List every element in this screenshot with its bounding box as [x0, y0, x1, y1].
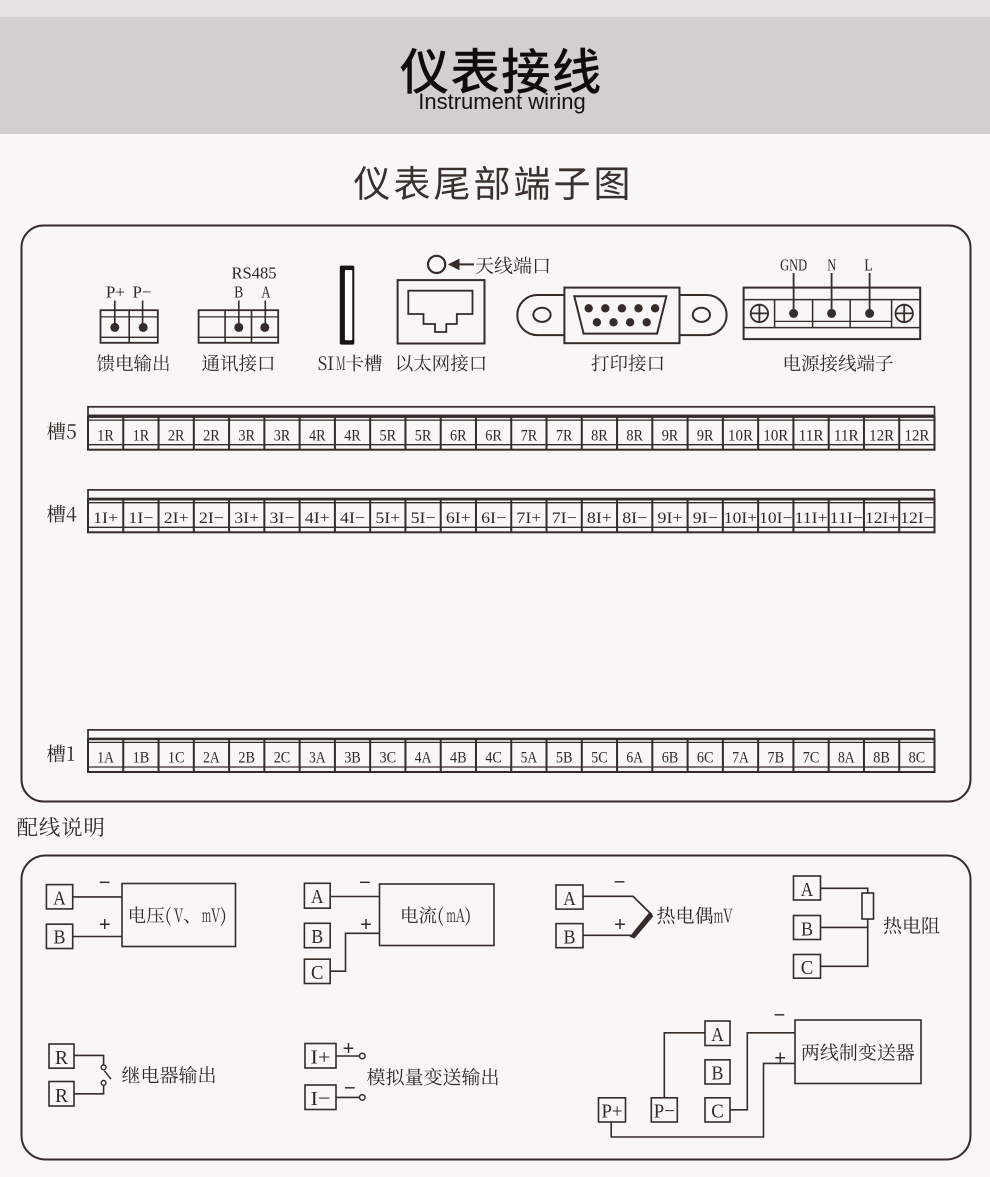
- svg-text:3R: 3R: [274, 427, 291, 444]
- svg-text:B: B: [311, 926, 323, 948]
- svg-text:C: C: [711, 1101, 724, 1123]
- svg-text:+: +: [342, 1039, 354, 1062]
- svg-text:2I−: 2I−: [199, 510, 224, 527]
- svg-text:P+: P+: [106, 283, 125, 302]
- svg-text:4R: 4R: [309, 427, 326, 444]
- svg-text:GND: GND: [780, 255, 807, 274]
- svg-text:5B: 5B: [556, 750, 573, 767]
- svg-text:8R: 8R: [626, 427, 643, 444]
- svg-text:RS485: RS485: [232, 264, 277, 283]
- svg-text:−: −: [773, 1006, 785, 1029]
- svg-text:5C: 5C: [591, 750, 608, 767]
- svg-text:L: L: [864, 255, 873, 274]
- svg-text:5I+: 5I+: [375, 510, 400, 527]
- svg-text:P−: P−: [133, 283, 152, 302]
- svg-text:2B: 2B: [238, 750, 255, 767]
- svg-text:8R: 8R: [591, 427, 608, 444]
- svg-text:N: N: [827, 255, 836, 274]
- svg-text:2I+: 2I+: [164, 510, 189, 527]
- svg-text:3A: 3A: [309, 750, 326, 767]
- svg-text:I−: I−: [311, 1088, 331, 1110]
- svg-text:−: −: [344, 1078, 356, 1101]
- svg-text:+: +: [774, 1048, 786, 1071]
- svg-text:R: R: [55, 1085, 68, 1107]
- svg-text:11I+: 11I+: [795, 510, 828, 527]
- svg-text:P+: P+: [602, 1101, 623, 1123]
- svg-text:10R: 10R: [763, 427, 788, 444]
- svg-text:Instrument wiring: Instrument wiring: [418, 89, 586, 114]
- svg-text:+: +: [614, 915, 626, 938]
- svg-text:1R: 1R: [97, 427, 114, 444]
- svg-text:R: R: [55, 1047, 68, 1069]
- svg-text:2C: 2C: [274, 750, 291, 767]
- svg-text:12I−: 12I−: [900, 510, 933, 527]
- svg-text:8I−: 8I−: [622, 510, 647, 527]
- svg-text:1R: 1R: [133, 427, 150, 444]
- svg-text:12R: 12R: [869, 427, 894, 444]
- svg-text:9R: 9R: [662, 427, 679, 444]
- svg-text:7I+: 7I+: [516, 510, 541, 527]
- svg-text:12R: 12R: [904, 427, 929, 444]
- svg-text:5A: 5A: [521, 750, 538, 767]
- svg-text:3R: 3R: [238, 427, 255, 444]
- svg-text:8C: 8C: [909, 750, 926, 767]
- svg-text:9I+: 9I+: [658, 510, 683, 527]
- svg-text:A: A: [801, 879, 814, 901]
- svg-text:1I+: 1I+: [93, 510, 118, 527]
- svg-text:3B: 3B: [344, 750, 361, 767]
- svg-text:2R: 2R: [203, 427, 220, 444]
- svg-text:6R: 6R: [485, 427, 502, 444]
- svg-text:4C: 4C: [485, 750, 502, 767]
- svg-text:9I−: 9I−: [693, 510, 718, 527]
- svg-text:A: A: [563, 888, 576, 910]
- svg-text:1I−: 1I−: [128, 510, 153, 527]
- svg-text:5R: 5R: [380, 427, 397, 444]
- svg-text:5I−: 5I−: [411, 510, 436, 527]
- svg-text:B: B: [564, 927, 576, 949]
- svg-text:C: C: [311, 962, 324, 984]
- svg-text:10I−: 10I−: [759, 510, 792, 527]
- svg-text:6B: 6B: [662, 750, 679, 767]
- svg-text:10R: 10R: [728, 427, 753, 444]
- svg-text:1A: 1A: [97, 750, 114, 767]
- svg-text:2A: 2A: [203, 750, 220, 767]
- svg-text:4I+: 4I+: [305, 510, 330, 527]
- svg-text:6I+: 6I+: [446, 510, 471, 527]
- svg-text:7I−: 7I−: [552, 510, 577, 527]
- svg-text:−: −: [359, 873, 371, 896]
- svg-text:8A: 8A: [838, 750, 855, 767]
- svg-text:10I+: 10I+: [724, 510, 757, 527]
- svg-text:9R: 9R: [697, 427, 714, 444]
- svg-text:B: B: [712, 1063, 724, 1085]
- svg-text:5R: 5R: [415, 427, 432, 444]
- svg-text:−: −: [99, 873, 111, 896]
- svg-text:A: A: [261, 283, 271, 302]
- svg-text:6R: 6R: [450, 427, 467, 444]
- svg-text:6C: 6C: [697, 750, 714, 767]
- svg-text:4B: 4B: [450, 750, 467, 767]
- svg-text:A: A: [53, 887, 66, 909]
- svg-text:8I+: 8I+: [587, 510, 612, 527]
- svg-text:2R: 2R: [168, 427, 185, 444]
- svg-text:B: B: [801, 918, 813, 940]
- svg-text:1B: 1B: [133, 750, 150, 767]
- svg-text:4A: 4A: [415, 750, 432, 767]
- svg-text:B: B: [54, 927, 66, 949]
- svg-text:11R: 11R: [799, 427, 824, 444]
- svg-text:7R: 7R: [556, 427, 573, 444]
- svg-text:A: A: [711, 1024, 724, 1046]
- svg-text:7B: 7B: [768, 750, 785, 767]
- svg-text:+: +: [99, 915, 111, 938]
- svg-text:3I−: 3I−: [270, 510, 295, 527]
- svg-text:C: C: [801, 957, 814, 979]
- svg-text:4I−: 4I−: [340, 510, 365, 527]
- svg-text:11I−: 11I−: [830, 510, 863, 527]
- svg-text:12I+: 12I+: [865, 510, 898, 527]
- svg-text:−: −: [614, 873, 626, 896]
- svg-text:8B: 8B: [873, 750, 890, 767]
- svg-text:I+: I+: [311, 1047, 331, 1069]
- svg-text:B: B: [234, 283, 243, 302]
- svg-text:7C: 7C: [803, 750, 820, 767]
- svg-text:+: +: [360, 915, 372, 938]
- svg-text:1C: 1C: [168, 750, 185, 767]
- svg-text:11R: 11R: [834, 427, 859, 444]
- svg-text:6A: 6A: [626, 750, 643, 767]
- svg-text:3C: 3C: [380, 750, 397, 767]
- svg-text:P−: P−: [654, 1101, 675, 1123]
- svg-text:A: A: [311, 886, 324, 908]
- svg-text:6I−: 6I−: [481, 510, 506, 527]
- svg-text:4R: 4R: [344, 427, 361, 444]
- svg-text:7R: 7R: [521, 427, 538, 444]
- svg-text:7A: 7A: [732, 750, 749, 767]
- svg-text:3I+: 3I+: [234, 510, 259, 527]
